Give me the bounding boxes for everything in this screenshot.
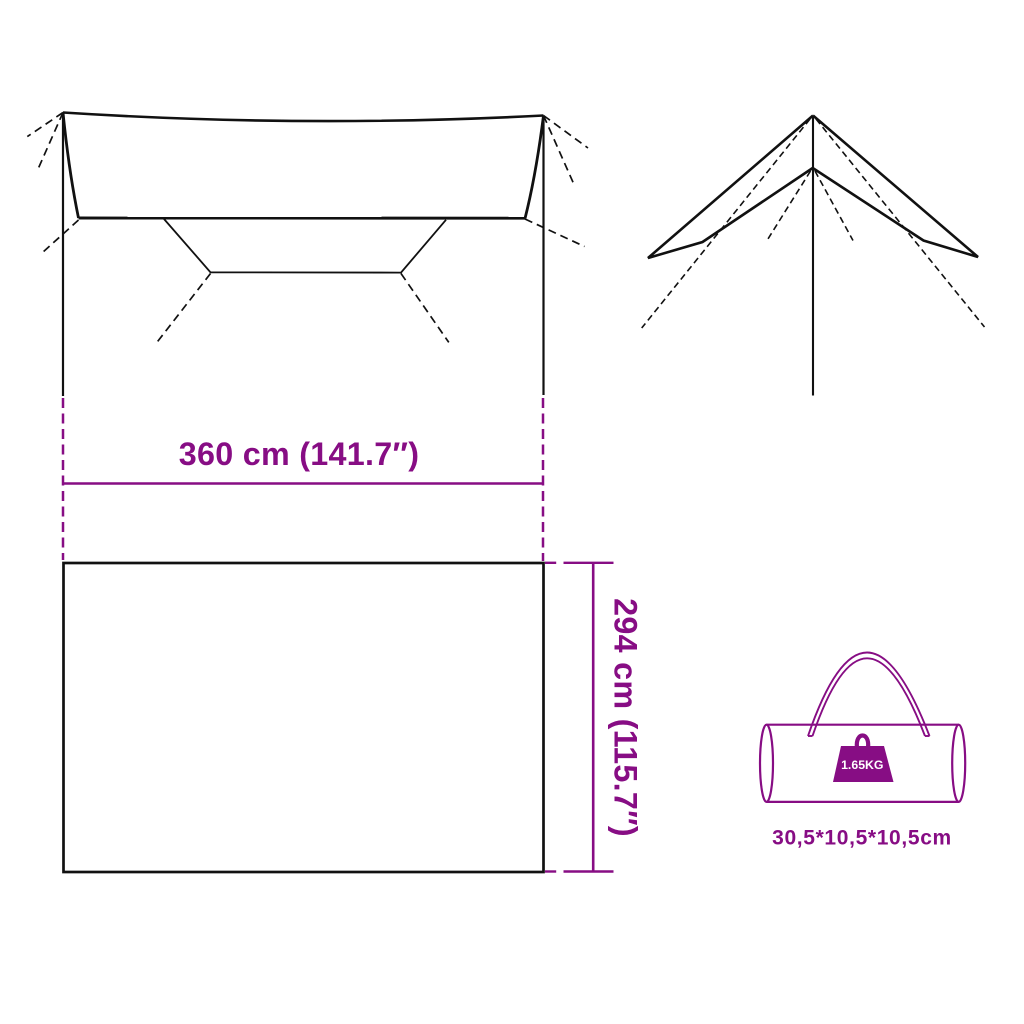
svg-text:30,5*10,5*10,5cm: 30,5*10,5*10,5cm — [772, 827, 952, 850]
svg-text:294 cm (115.7″): 294 cm (115.7″) — [608, 598, 644, 837]
svg-text:360 cm (141.7″): 360 cm (141.7″) — [179, 436, 420, 472]
svg-text:1.65KG: 1.65KG — [841, 758, 883, 772]
